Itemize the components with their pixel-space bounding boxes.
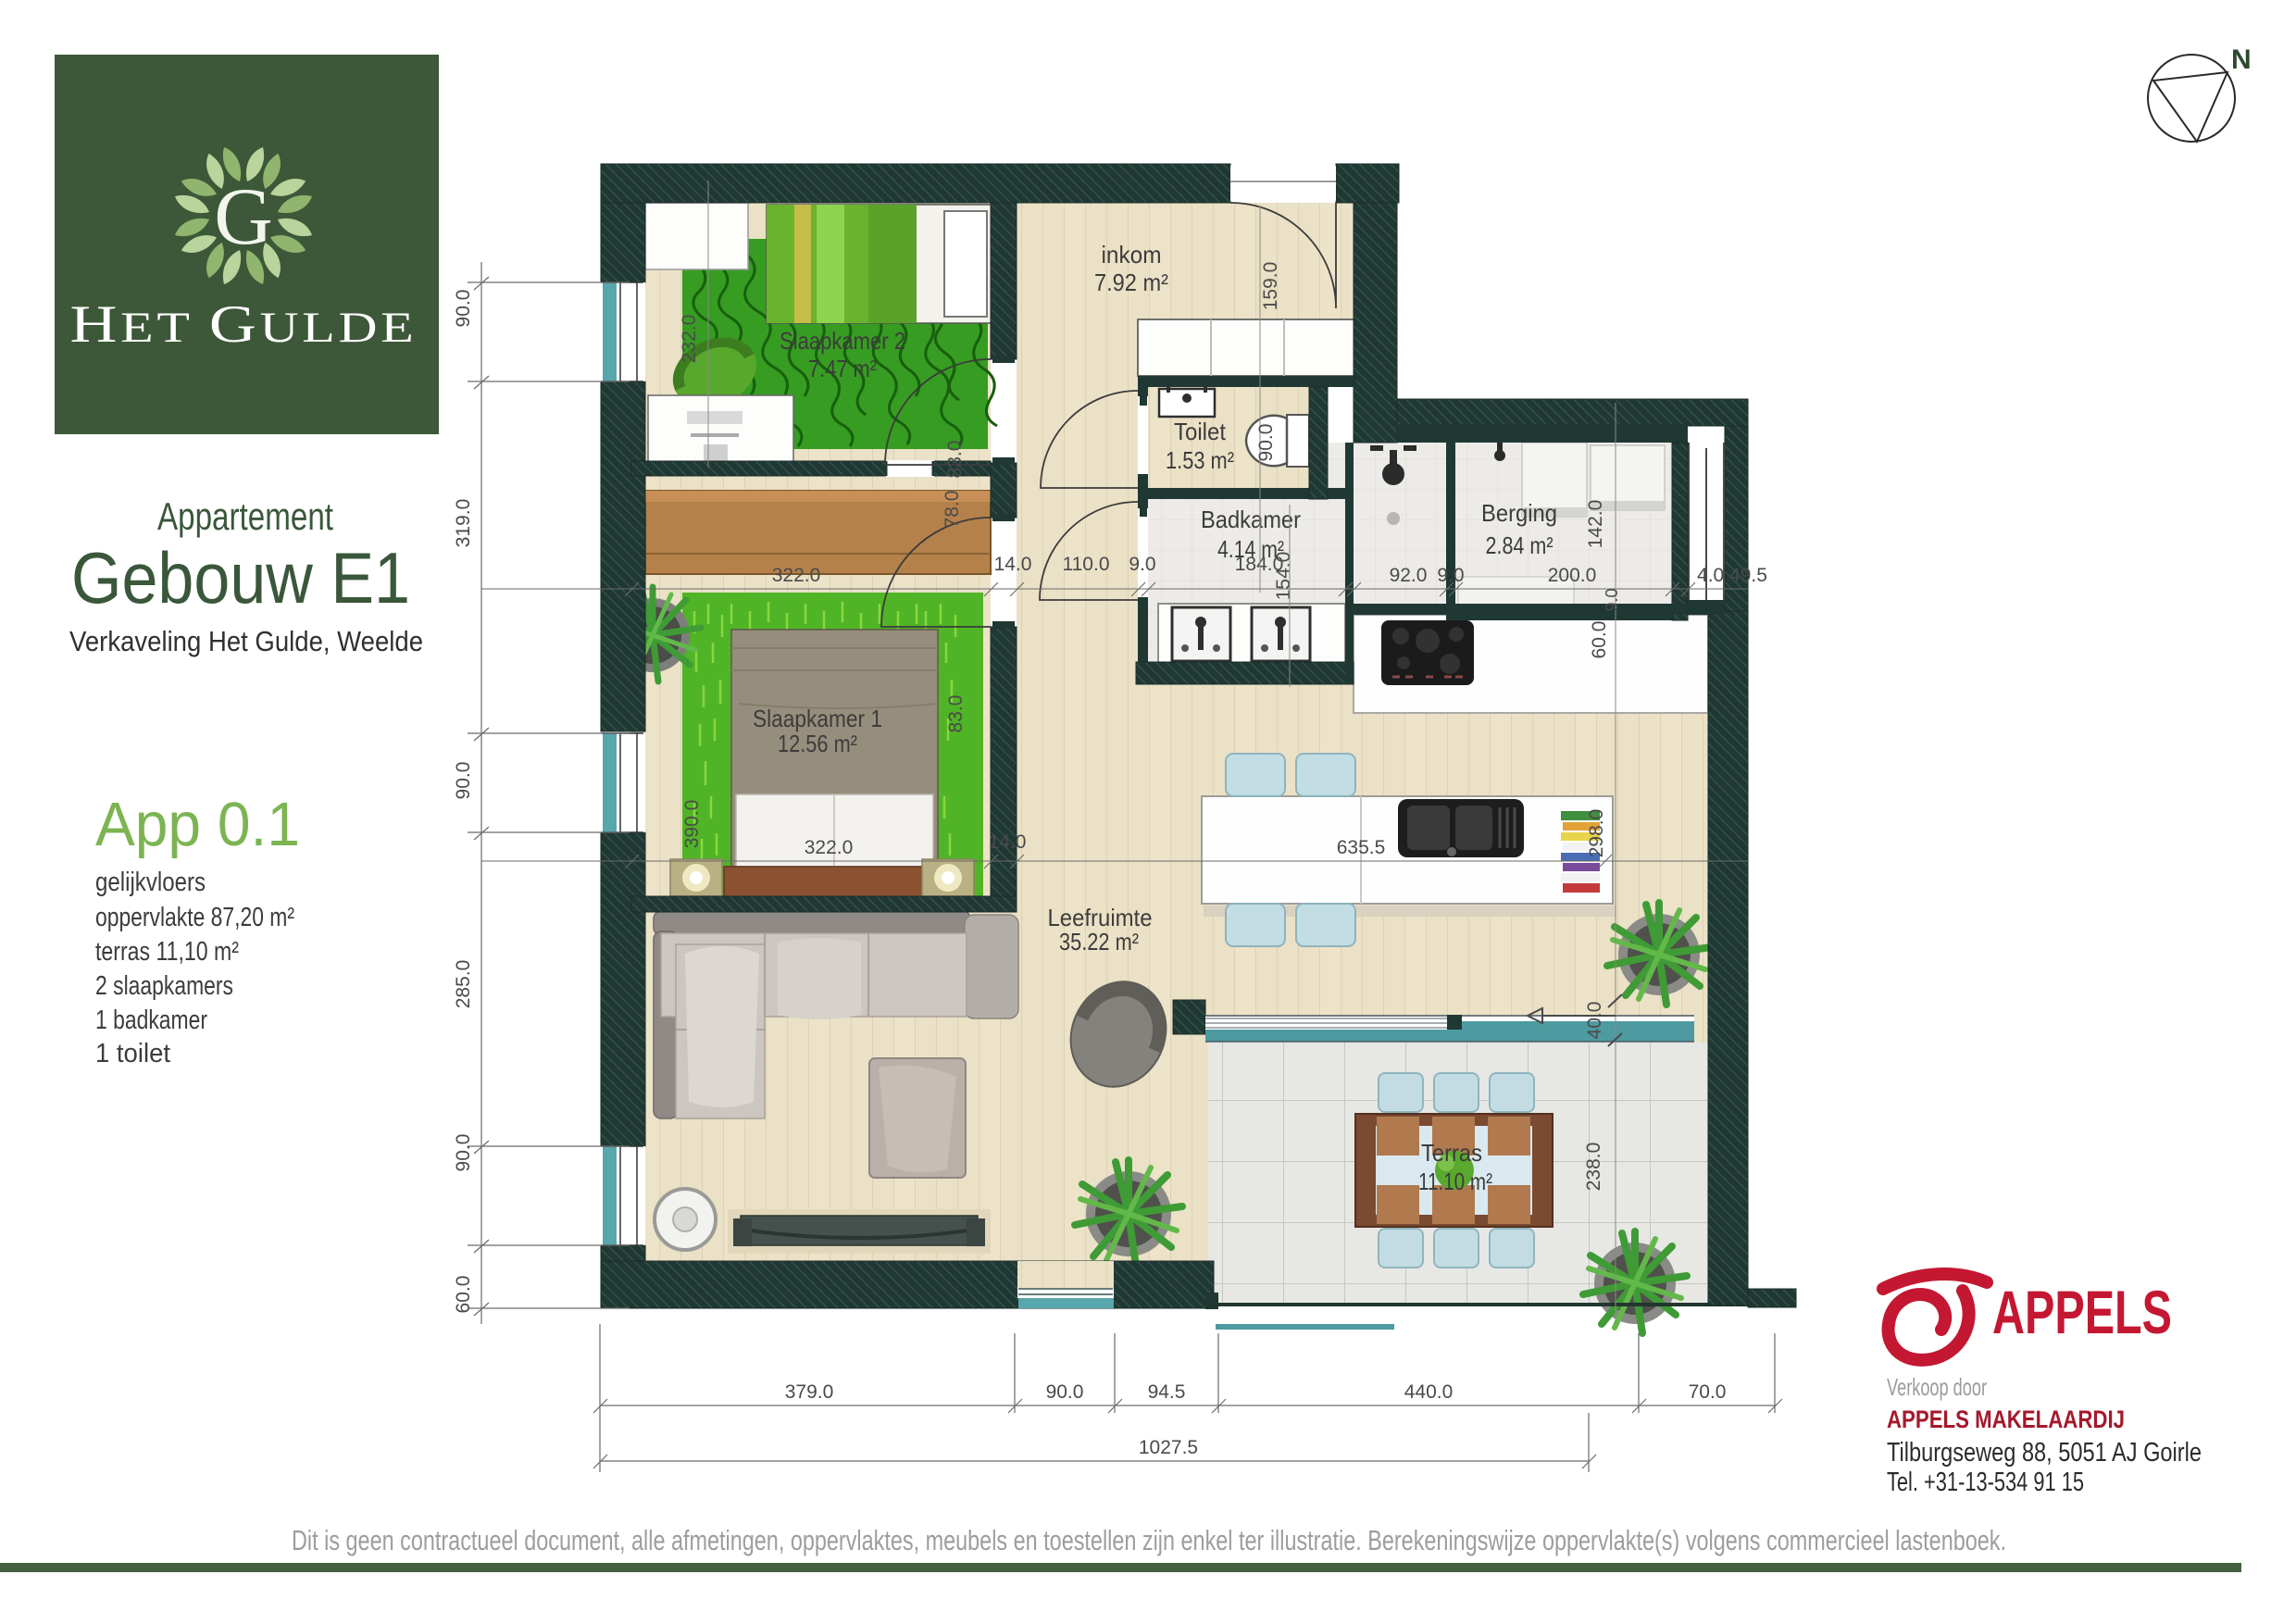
svg-text:Toilet: Toilet: [1174, 418, 1227, 445]
svg-text:12.56 m²: 12.56 m²: [778, 730, 857, 757]
svg-text:200.0: 200.0: [1548, 565, 1597, 586]
svg-text:142.0: 142.0: [1585, 500, 1606, 549]
svg-text:4.0 49.5: 4.0 49.5: [1697, 565, 1767, 586]
svg-text:1 badkamer: 1 badkamer: [95, 1006, 207, 1035]
svg-text:285.0: 285.0: [453, 960, 474, 1009]
svg-text:2.84 m²: 2.84 m²: [1486, 531, 1554, 559]
svg-text:inkom: inkom: [1102, 241, 1162, 269]
svg-text:40.0: 40.0: [1584, 1002, 1605, 1040]
svg-text:Verkaveling Het Gulde, Weelde: Verkaveling Het Gulde, Weelde: [69, 625, 423, 657]
svg-text:Badkamer: Badkamer: [1201, 506, 1301, 533]
svg-text:14.0: 14.0: [989, 831, 1027, 853]
svg-text:Gebouw E1: Gebouw E1: [71, 537, 410, 618]
svg-text:9.0: 9.0: [1129, 554, 1155, 575]
svg-text:90.0: 90.0: [1046, 1381, 1084, 1403]
svg-text:oppervlakte 87,20 m²: oppervlakte 87,20 m²: [95, 903, 294, 932]
svg-text:Tel. +31-13-534 91 15: Tel. +31-13-534 91 15: [1887, 1468, 2084, 1497]
svg-text:298.0: 298.0: [1586, 809, 1607, 858]
svg-text:60.0: 60.0: [1589, 621, 1610, 659]
svg-text:HET GULDE: HET GULDE: [70, 295, 418, 354]
svg-text:7.92 m²: 7.92 m²: [1094, 269, 1168, 296]
svg-text:322.0: 322.0: [772, 565, 821, 586]
svg-text:7.47 m²: 7.47 m²: [808, 355, 877, 382]
svg-text:322.0: 322.0: [805, 837, 854, 858]
svg-text:70.0: 70.0: [1689, 1381, 1727, 1403]
svg-text:N: N: [2231, 44, 2252, 75]
svg-text:Tilburgseweg 88, 5051 AJ Goirl: Tilburgseweg 88, 5051 AJ Goirle: [1887, 1438, 2202, 1468]
svg-text:90.0: 90.0: [453, 762, 474, 800]
svg-text:110.0: 110.0: [1063, 554, 1110, 575]
svg-text:379.0: 379.0: [785, 1381, 834, 1403]
svg-text:78.0: 78.0: [942, 491, 963, 529]
svg-text:2 slaapkamers: 2 slaapkamers: [95, 971, 233, 1001]
svg-text:APPELS: APPELS: [1992, 1278, 2172, 1346]
svg-text:9.0: 9.0: [1437, 565, 1464, 586]
svg-text:159.0: 159.0: [1260, 262, 1281, 311]
svg-text:94.5: 94.5: [1148, 1381, 1186, 1403]
svg-text:390.0: 390.0: [681, 800, 703, 849]
svg-text:terras 11,10 m²: terras 11,10 m²: [95, 937, 239, 967]
svg-text:gelijkvloers: gelijkvloers: [95, 868, 206, 897]
svg-text:9.0: 9.0: [1603, 588, 1621, 611]
svg-text:14.0: 14.0: [994, 554, 1032, 575]
svg-text:92.0: 92.0: [1390, 565, 1428, 586]
svg-text:1.53 m²: 1.53 m²: [1166, 446, 1234, 474]
svg-text:G: G: [214, 172, 273, 262]
svg-text:Terras: Terras: [1421, 1139, 1482, 1167]
svg-text:83.0: 83.0: [944, 441, 966, 479]
svg-text:1 toilet: 1 toilet: [95, 1039, 170, 1068]
svg-text:83.0: 83.0: [945, 695, 967, 733]
svg-text:90.0: 90.0: [453, 290, 474, 328]
svg-text:154.0: 154.0: [1273, 552, 1294, 601]
svg-text:11.10 m²: 11.10 m²: [1418, 1168, 1492, 1195]
svg-text:Slaapkamer 2: Slaapkamer 2: [780, 327, 905, 355]
svg-text:1027.5: 1027.5: [1139, 1437, 1198, 1458]
svg-text:Appartement: Appartement: [157, 494, 333, 538]
svg-text:Dit is geen contractueel docum: Dit is geen contractueel document, alle …: [292, 1524, 2006, 1556]
svg-text:319.0: 319.0: [453, 499, 474, 548]
svg-text:90.0: 90.0: [1255, 424, 1277, 462]
svg-text:440.0: 440.0: [1404, 1381, 1454, 1403]
svg-text:Verkoop door: Verkoop door: [1887, 1373, 1987, 1401]
svg-text:Berging: Berging: [1481, 499, 1557, 527]
svg-text:35.22 m²: 35.22 m²: [1059, 928, 1139, 956]
svg-text:Slaapkamer 1: Slaapkamer 1: [753, 705, 882, 732]
svg-text:APPELS MAKELAARDIJ: APPELS MAKELAARDIJ: [1887, 1405, 2125, 1433]
svg-text:635.5: 635.5: [1337, 837, 1386, 858]
svg-text:60.0: 60.0: [453, 1276, 474, 1314]
svg-text:238.0: 238.0: [1583, 1143, 1604, 1192]
svg-text:90.0: 90.0: [453, 1134, 474, 1172]
svg-text:232.0: 232.0: [679, 315, 700, 364]
svg-text:App 0.1: App 0.1: [95, 790, 300, 859]
